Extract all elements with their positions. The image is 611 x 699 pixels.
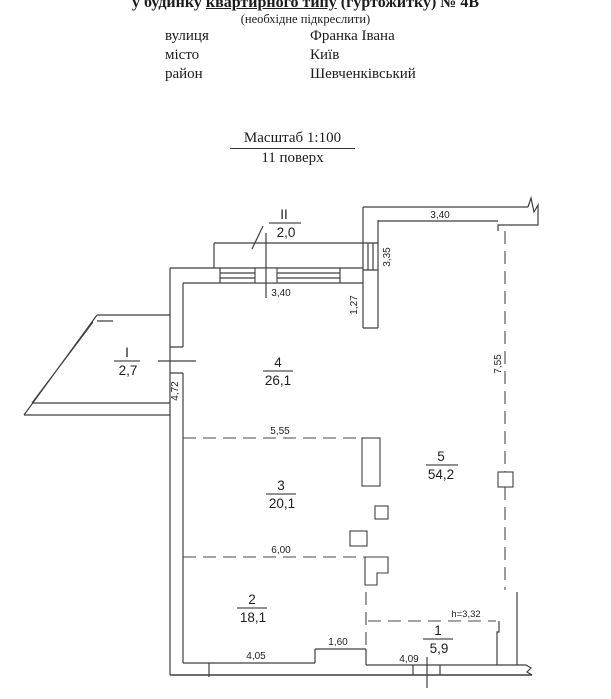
balcony-label-i: I 2,7 <box>114 345 140 378</box>
room-number: 5 <box>437 449 445 464</box>
dashed-boundaries <box>183 231 505 648</box>
room-number: 4 <box>274 355 282 370</box>
floor-plan-drawing: 4 26,1 3 20,1 2 18,1 5 54,2 1 <box>0 0 611 699</box>
label-leader-line <box>252 226 263 249</box>
window-right <box>363 207 378 328</box>
room-number: 1 <box>434 623 442 638</box>
duct-l-shape <box>365 557 388 585</box>
room-label-4: 4 26,1 <box>263 355 293 388</box>
dim-room5-top: 3,40 <box>430 210 450 221</box>
duct-small-a <box>375 506 388 519</box>
room-area: 54,2 <box>428 467 454 482</box>
room-area: 18,1 <box>240 610 266 625</box>
dim-divider-23: 6,00 <box>271 545 291 556</box>
room-number: 2 <box>248 592 256 607</box>
balcony-area: 2,7 <box>119 363 138 378</box>
duct-small-b <box>350 531 367 546</box>
dim-bottom-right: 4,09 <box>399 654 419 665</box>
dim-ceiling-height: h=3,32 <box>451 609 480 620</box>
room5-top-wall <box>363 198 538 231</box>
room-label-5: 5 54,2 <box>426 449 458 482</box>
pilaster <box>497 621 499 665</box>
room-label-1: 1 5,9 <box>423 623 453 656</box>
duct-right <box>498 472 513 487</box>
room-label-2: 2 18,1 <box>237 592 267 625</box>
right-wall <box>497 592 517 665</box>
balcony-door-jambs <box>170 347 183 373</box>
dim-top-window: 3,40 <box>271 288 291 299</box>
room-number: 3 <box>277 478 285 493</box>
floor-plan-document: у будинку квартирного типу (гуртожитку) … <box>0 0 611 699</box>
dim-step: 1,60 <box>328 637 348 648</box>
room-area: 26,1 <box>265 373 291 388</box>
balcony-label-ii: II 2,0 <box>269 207 301 240</box>
break-mark-top <box>498 198 538 231</box>
dim-room5-right: 7,55 <box>493 354 504 374</box>
dim-divider-34: 5,55 <box>270 426 290 437</box>
room-area: 5,9 <box>430 641 449 656</box>
dim-left-wall: 4,72 <box>170 381 181 401</box>
break-mark-bottom <box>526 665 532 675</box>
service-shafts <box>350 438 513 585</box>
balcony-number: I <box>125 345 129 360</box>
bottom-walls <box>170 649 532 688</box>
room-area: 20,1 <box>269 496 295 511</box>
dim-pier: 1,27 <box>349 295 360 315</box>
balcony-number: II <box>280 207 288 222</box>
room-label-3: 3 20,1 <box>266 478 296 511</box>
dim-bottom-left: 4,05 <box>246 651 266 662</box>
balcony-area: 2,0 <box>277 225 296 240</box>
dim-right-window: 3,35 <box>382 247 393 267</box>
duct-tall <box>362 438 380 486</box>
